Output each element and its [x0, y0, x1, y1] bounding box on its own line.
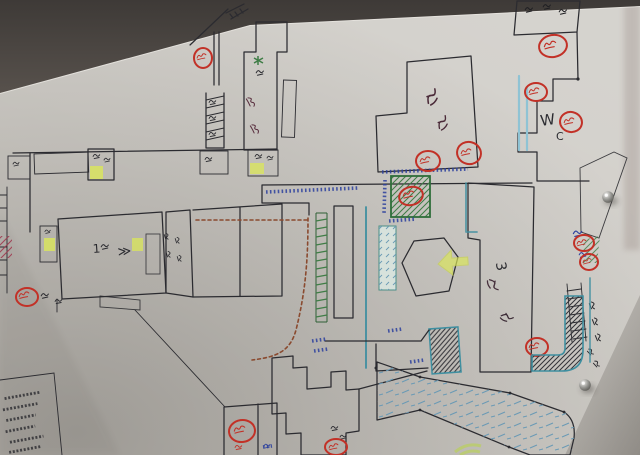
route-arrow: ≫: [117, 244, 132, 260]
road-rect: [429, 327, 461, 374]
wc-letter-w: W: [539, 110, 556, 130]
map-photo: W C 1: [0, 0, 640, 455]
hand-drawn-map: W C 1: [0, 0, 640, 455]
room-one-number: 1: [92, 241, 101, 255]
green-square: [384, 176, 430, 221]
paper-background: [0, 0, 640, 455]
wall-right-edge: [624, 0, 640, 250]
teal-dotted-strip: [379, 226, 396, 290]
wc-letter-c: C: [556, 130, 564, 143]
